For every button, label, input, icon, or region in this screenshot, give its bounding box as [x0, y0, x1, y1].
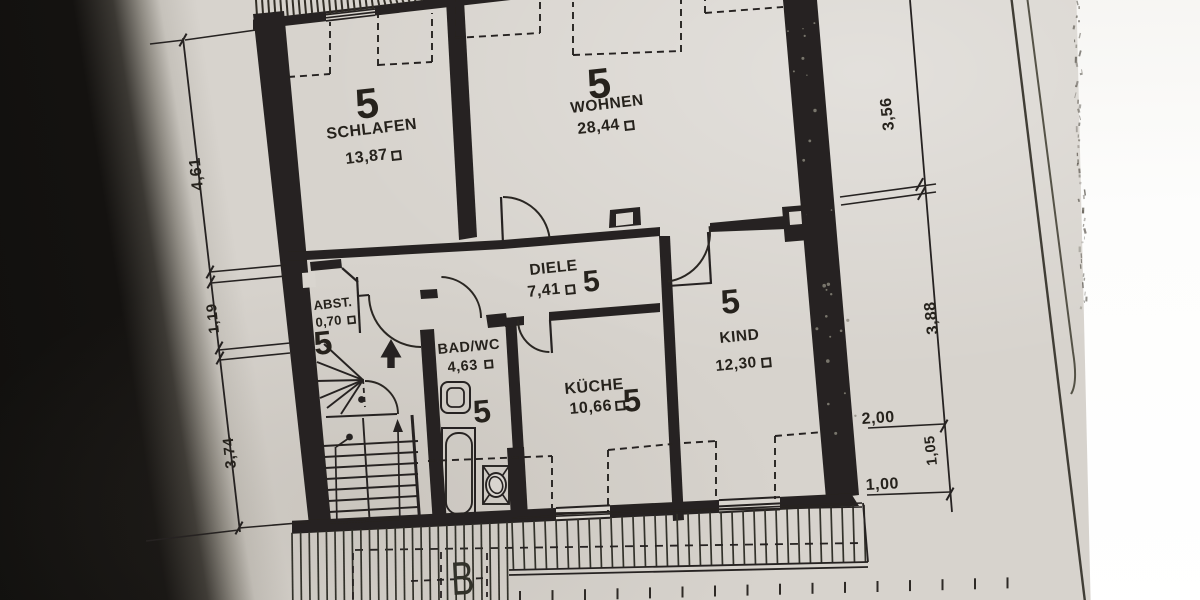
- svg-text:4,61: 4,61: [187, 157, 207, 192]
- svg-text:WOHNEN: WOHNEN: [570, 92, 645, 117]
- svg-text:10,66: 10,66: [569, 397, 613, 418]
- svg-text:3,88: 3,88: [922, 301, 942, 336]
- svg-text:KÜCHE: KÜCHE: [564, 374, 625, 398]
- svg-text:7,41: 7,41: [527, 281, 562, 301]
- svg-text:12,30: 12,30: [715, 354, 758, 375]
- svg-text:SCHLAFEN: SCHLAFEN: [326, 116, 418, 143]
- svg-text:1,05: 1,05: [922, 435, 941, 467]
- svg-text:5: 5: [312, 323, 334, 362]
- svg-text:ABST.: ABST.: [313, 294, 353, 313]
- svg-text:28,44: 28,44: [577, 116, 621, 138]
- svg-text:1,00: 1,00: [865, 475, 899, 494]
- svg-text:13,87: 13,87: [345, 146, 389, 168]
- svg-text:5: 5: [719, 282, 741, 322]
- svg-text:1,19: 1,19: [204, 303, 223, 335]
- svg-text:5: 5: [621, 382, 642, 419]
- svg-text:BAD/WC: BAD/WC: [437, 337, 501, 358]
- svg-text:3,74: 3,74: [220, 436, 240, 469]
- svg-text:5: 5: [581, 264, 601, 299]
- svg-text:B: B: [450, 551, 476, 600]
- svg-text:3,56: 3,56: [878, 97, 898, 132]
- svg-text:2,00: 2,00: [861, 409, 895, 428]
- svg-text:KIND: KIND: [719, 326, 760, 347]
- svg-text:5: 5: [471, 393, 492, 430]
- svg-text:4,63: 4,63: [447, 357, 479, 376]
- svg-text:DIELE: DIELE: [529, 257, 579, 279]
